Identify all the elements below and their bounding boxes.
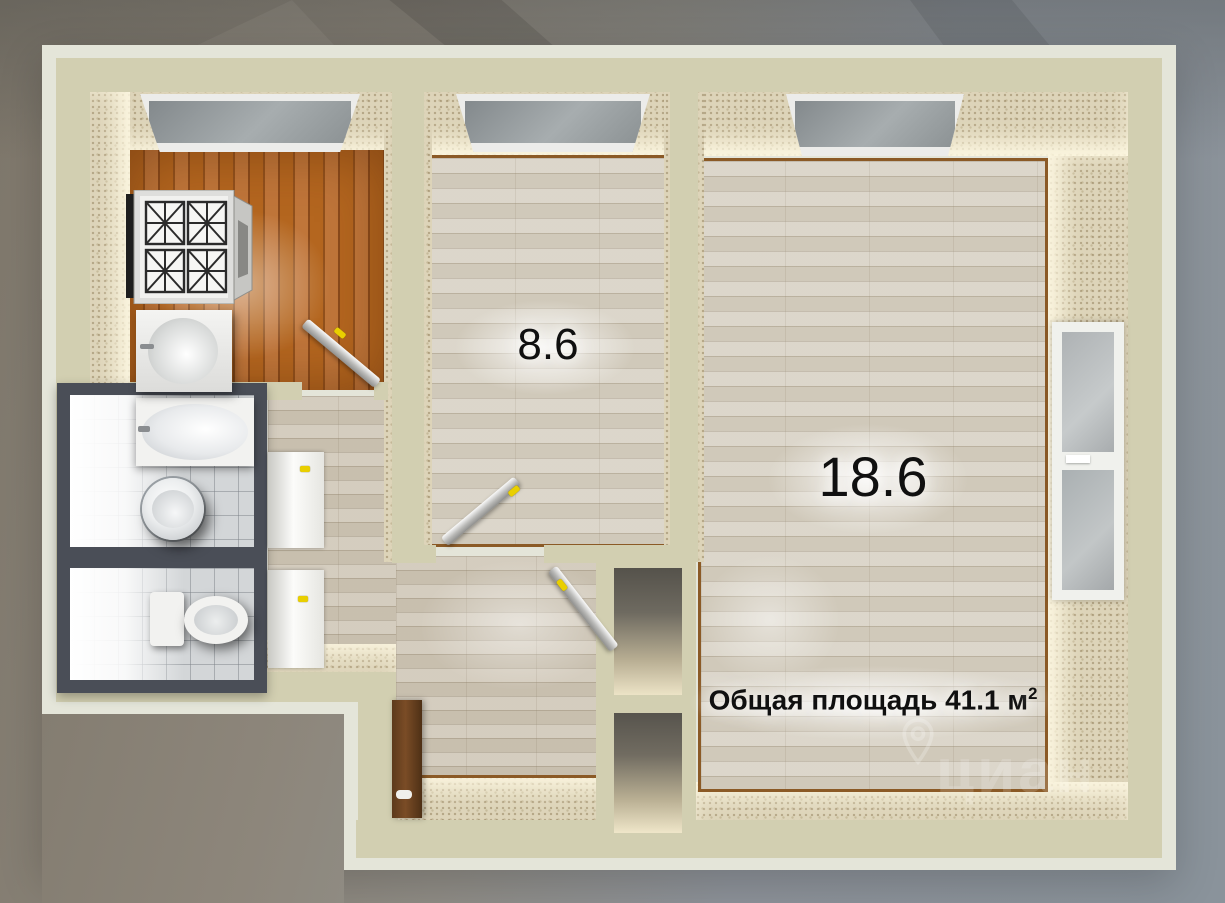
wash-basin [142,478,204,540]
gas-stove [126,190,254,304]
entry-corridor-left-wall [596,548,614,858]
kitchen-window [140,94,360,152]
total-area-text: Общая площадь 41.1 м [709,684,1028,715]
entry-corridor-floor-upper [614,568,682,695]
small-room-window-glass [465,101,641,143]
toilet-seat [194,605,238,635]
small-room-area-label: 8.6 [428,320,668,370]
bathtub-basin [142,404,248,460]
entry-corridor-header-mid [614,695,682,713]
kitchen-window-glass [149,101,351,143]
toilet-bowl [184,596,248,644]
bathtub-faucet [138,426,150,432]
large-room-window [786,94,964,156]
wall-kitchen-divider-top [392,92,424,562]
toilet-door [268,570,324,668]
toilet-door-handle [298,596,308,602]
side-window-handle [1066,455,1090,463]
wall-bottom [356,820,1162,858]
wall-rooms-divider-top [670,92,698,562]
large-room-door-light [700,555,840,685]
entry-corridor-floor-lower [614,713,682,833]
floor-plan-render: 8.6 18.6 Общая площадь 41.1 м2 циан [0,0,1225,903]
watermark-text: циан [936,736,1096,807]
wall-top [56,58,1162,94]
large-room-area-label: 18.6 [698,444,1048,509]
bathtub [136,398,254,466]
side-window [1052,322,1124,600]
entry-corridor-header-top [596,548,696,568]
large-room-window-glass [795,101,955,147]
total-area-label: Общая площадь 41.1 м2 [678,684,1068,716]
wash-basin-bowl [152,490,194,528]
hallway-cabinet [392,700,422,818]
bathroom-door [268,452,324,548]
kitchen-sink-faucet [140,344,154,349]
cabinet-handle [396,790,412,799]
entry-corridor-bottom [614,833,696,858]
wall-face-hall-bottom [398,775,612,820]
wall-small-room-bottom-left [392,545,436,563]
side-window-pane-top [1062,332,1114,452]
small-room-window [456,94,650,152]
wall-right [1126,58,1162,858]
outline-notch [42,714,344,903]
side-window-pane-bottom [1062,470,1114,590]
kitchen-sink-basin [148,318,218,384]
bathroom-door-handle [300,466,310,472]
location-pin-icon [896,716,940,768]
toilet-tank [150,592,184,646]
total-area-superscript: 2 [1028,684,1037,703]
kitchen-sink [136,310,232,392]
